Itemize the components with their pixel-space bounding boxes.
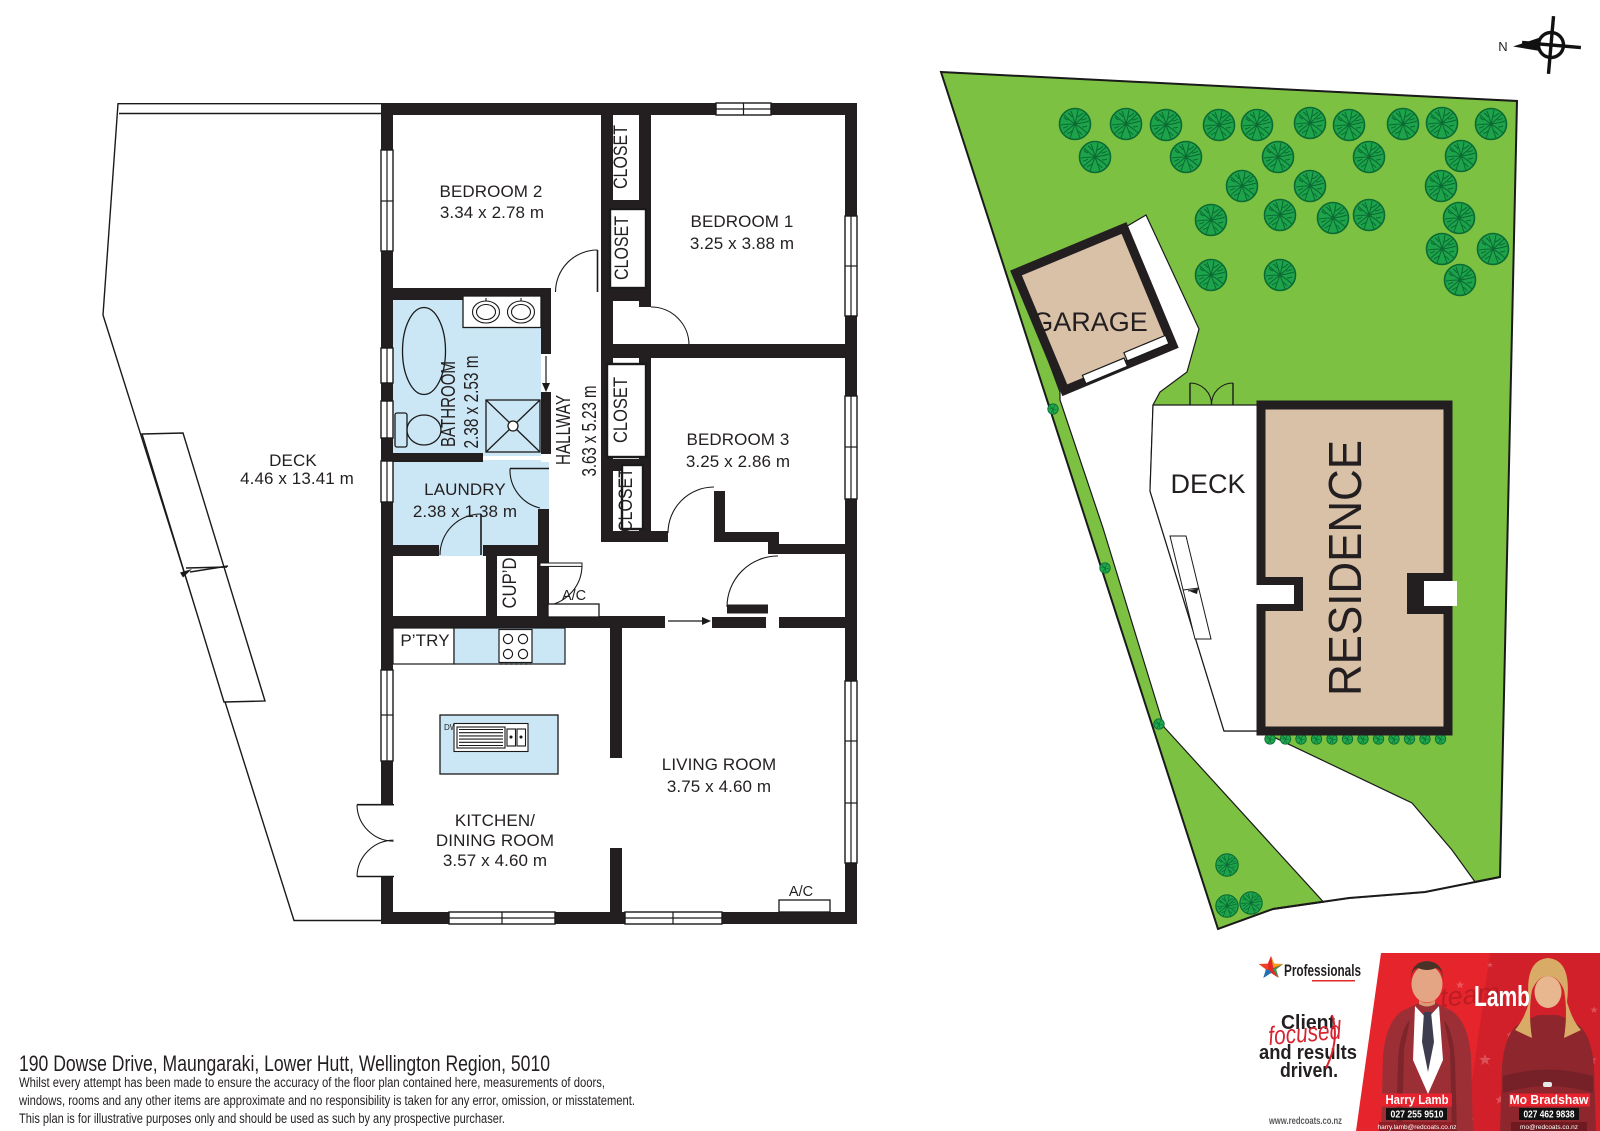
- svg-text:3.34 x 2.78 m: 3.34 x 2.78 m: [440, 203, 544, 222]
- svg-text:2.38 x 2.53 m: 2.38 x 2.53 m: [461, 356, 483, 449]
- svg-text:RESIDENCE: RESIDENCE: [1319, 440, 1371, 696]
- svg-text:3.75 x 4.60 m: 3.75 x 4.60 m: [667, 777, 771, 796]
- svg-text:harry.lamb@redcoats.co.nz: harry.lamb@redcoats.co.nz: [1377, 1124, 1456, 1131]
- svg-text:3.57 x 4.60 m: 3.57 x 4.60 m: [443, 851, 547, 870]
- svg-text:BATHROOM: BATHROOM: [438, 361, 460, 447]
- svg-text:027 462 9838: 027 462 9838: [1524, 1109, 1575, 1121]
- svg-text:3.25 x 2.86 m: 3.25 x 2.86 m: [686, 452, 790, 471]
- svg-text:windows, rooms and any other i: windows, rooms and any other items are a…: [18, 1093, 635, 1108]
- svg-text:BEDROOM 3: BEDROOM 3: [687, 430, 790, 449]
- svg-text:KITCHEN/: KITCHEN/: [455, 811, 535, 830]
- svg-text:CLOSET: CLOSET: [611, 125, 632, 189]
- svg-text:LIVING ROOM: LIVING ROOM: [662, 755, 776, 774]
- svg-text:CLOSET: CLOSET: [611, 377, 632, 443]
- svg-text:N: N: [1498, 39, 1507, 54]
- svg-text:DECK: DECK: [1170, 469, 1245, 499]
- svg-text:mo@redcoats.co.nz: mo@redcoats.co.nz: [1520, 1124, 1578, 1131]
- svg-text:Professionals: Professionals: [1284, 962, 1361, 980]
- svg-text:CUP’D: CUP’D: [500, 558, 521, 609]
- svg-text:A/C: A/C: [789, 884, 813, 900]
- svg-text:driven.: driven.: [1280, 1060, 1338, 1082]
- svg-text:GARAGE: GARAGE: [1032, 307, 1148, 337]
- svg-text:4.46 x 13.41 m: 4.46 x 13.41 m: [240, 469, 354, 488]
- svg-text:CLOSET: CLOSET: [612, 216, 633, 280]
- svg-text:Lamb: Lamb: [1474, 981, 1530, 1013]
- svg-text:P’TRY: P’TRY: [400, 631, 449, 650]
- svg-text:Mo Bradshaw: Mo Bradshaw: [1510, 1092, 1590, 1107]
- svg-text:3.25 x 3.88 m: 3.25 x 3.88 m: [690, 234, 794, 253]
- svg-text:This plan is for illustrative: This plan is for illustrative purposes o…: [19, 1111, 505, 1126]
- svg-text:DINING ROOM: DINING ROOM: [436, 831, 554, 850]
- svg-text:Whilst every attempt has been: Whilst every attempt has been made to en…: [19, 1075, 605, 1090]
- svg-text:BEDROOM 2: BEDROOM 2: [440, 182, 543, 201]
- svg-text:190 Dowse Drive, Maungaraki, L: 190 Dowse Drive, Maungaraki, Lower Hutt,…: [19, 1051, 550, 1076]
- svg-text:3.63 x 5.23 m: 3.63 x 5.23 m: [579, 386, 601, 477]
- svg-text:DECK: DECK: [269, 451, 317, 470]
- svg-text:www.redcoats.co.nz: www.redcoats.co.nz: [1268, 1116, 1342, 1127]
- svg-text:CLOSET: CLOSET: [616, 468, 637, 532]
- svg-text:BEDROOM 1: BEDROOM 1: [691, 212, 794, 231]
- svg-text:A/C: A/C: [562, 588, 586, 604]
- svg-text:HALLWAY: HALLWAY: [553, 395, 575, 465]
- svg-text:027 255 9510: 027 255 9510: [1391, 1109, 1444, 1121]
- svg-text:Harry Lamb: Harry Lamb: [1386, 1093, 1449, 1107]
- svg-text:2.38 x 1.38 m: 2.38 x 1.38 m: [413, 502, 517, 521]
- svg-text:LAUNDRY: LAUNDRY: [424, 480, 506, 499]
